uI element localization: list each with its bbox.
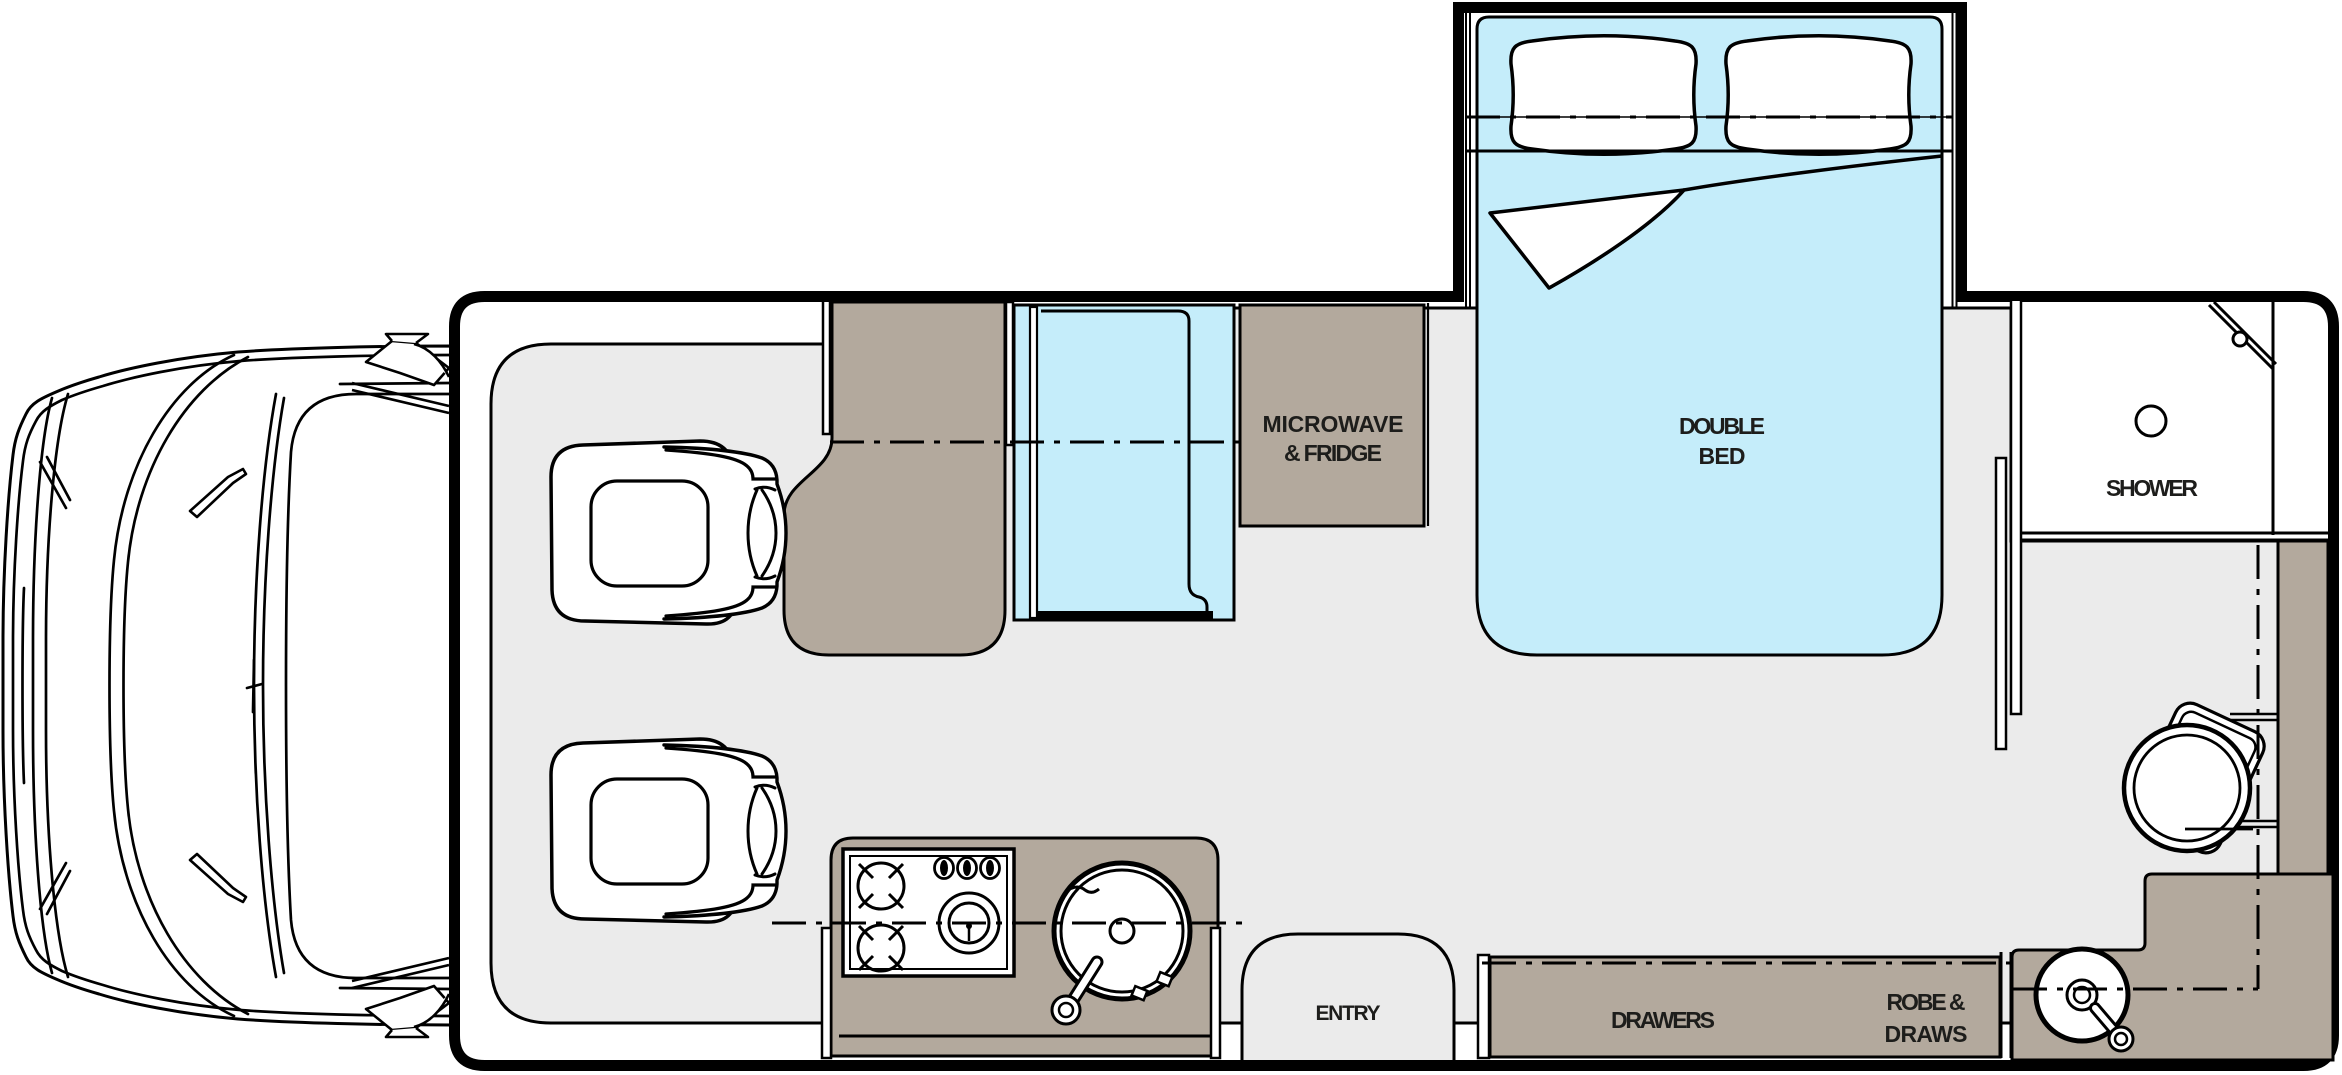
svg-text:& FRIDGE: & FRIDGE (1284, 440, 1382, 466)
svg-text:DRAWS: DRAWS (1885, 1021, 1968, 1047)
svg-text:DRAWERS: DRAWERS (1611, 1007, 1715, 1033)
svg-text:ENTRY: ENTRY (1316, 1002, 1381, 1025)
svg-text:BED: BED (1699, 443, 1746, 469)
svg-text:MICROWAVE: MICROWAVE (1263, 411, 1404, 437)
svg-text:ROBE &: ROBE & (1887, 989, 1966, 1015)
svg-text:SHOWER: SHOWER (2106, 475, 2198, 501)
svg-text:DOUBLE: DOUBLE (1679, 413, 1765, 439)
